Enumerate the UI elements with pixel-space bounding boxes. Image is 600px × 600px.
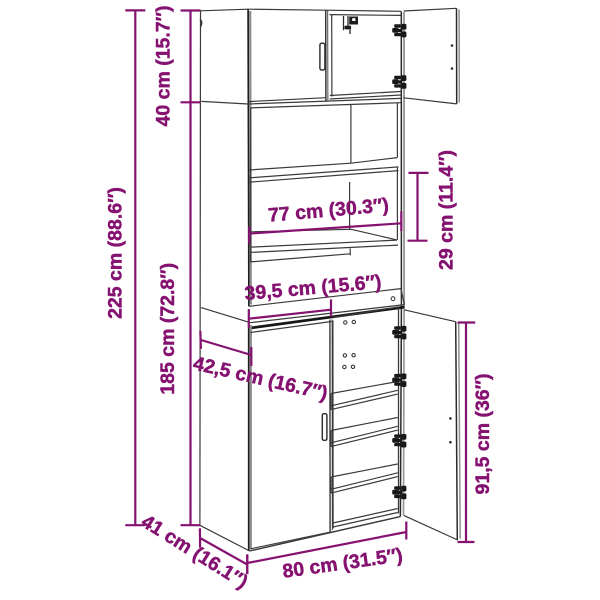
- svg-text:91,5 cm (36″): 91,5 cm (36″): [472, 374, 494, 495]
- svg-text:225 cm (88.6″): 225 cm (88.6″): [105, 187, 127, 319]
- svg-text:29 cm (11.4″): 29 cm (11.4″): [436, 150, 458, 270]
- svg-text:40 cm (15.7″): 40 cm (15.7″): [153, 6, 175, 127]
- svg-text:185 cm (72.8″): 185 cm (72.8″): [157, 263, 179, 395]
